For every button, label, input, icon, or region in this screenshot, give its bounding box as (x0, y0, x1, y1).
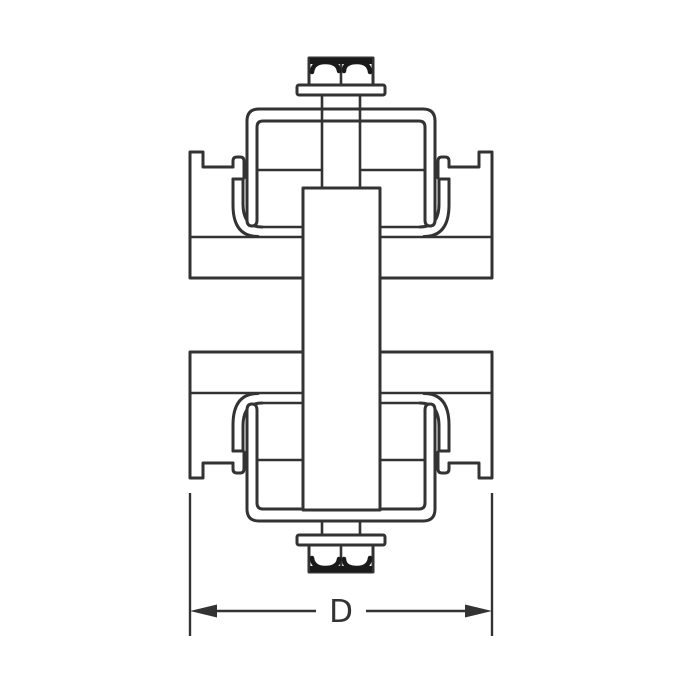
dimension-label: D (329, 594, 353, 630)
arrow-right-icon (465, 605, 492, 618)
drawing-canvas: D (0, 0, 700, 700)
threaded-rod-lower (322, 521, 360, 535)
arrow-left-icon (190, 605, 217, 618)
technical-diagram: D (0, 0, 700, 700)
center-plate (303, 188, 380, 510)
